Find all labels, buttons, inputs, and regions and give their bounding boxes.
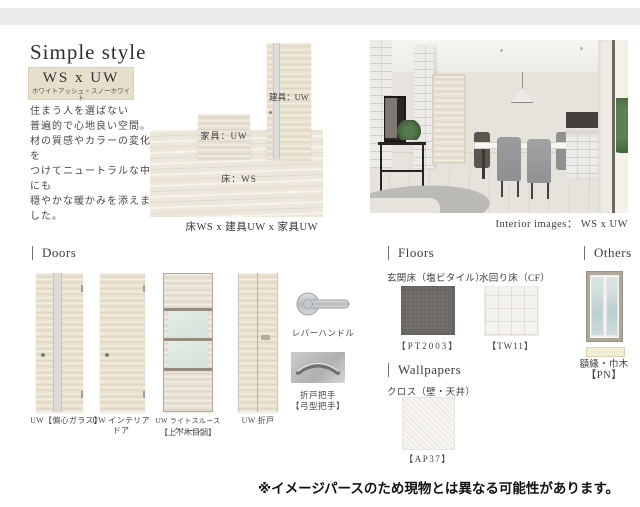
interior-pendant-rim — [511, 102, 533, 103]
description-line: 材の質感やカラーの変化を — [30, 134, 160, 164]
door-knob — [105, 353, 109, 357]
interior-photo — [370, 40, 628, 213]
style-description: 住まう人を選ばない 普遍的で心地良い空間。 材の質感やカラーの変化を つけてニュ… — [30, 104, 160, 224]
wallpaper-name: クロス（壁・天井） — [387, 384, 475, 398]
bifold-edge — [277, 273, 278, 412]
interior-right-wall — [598, 40, 612, 213]
interior-pendant-shade — [511, 88, 533, 103]
interior-table-top — [474, 142, 578, 149]
door-label-line2: 【上下木目調】 — [152, 427, 224, 438]
interior-caption: Interior images： WS x UW — [428, 216, 628, 231]
interior-console-top — [378, 142, 426, 145]
lever-handle-image — [293, 286, 353, 322]
top-gray-bar — [0, 8, 640, 25]
furniture-material-label: 家具：UW — [198, 129, 250, 142]
wallpapers-section-header: Wallpapers — [388, 363, 461, 377]
door-label: UW 折戸 — [232, 416, 284, 426]
page-title: Simple style — [30, 40, 146, 65]
bifold-handle-image — [291, 352, 345, 383]
floor-material-label: 床：WS — [199, 172, 279, 185]
doors-section-header: Doors — [32, 246, 76, 260]
floors-section-header: Floors — [388, 246, 434, 260]
interior-table-legs — [482, 149, 485, 179]
floor-swatch-tw11 — [484, 286, 539, 336]
furniture-material-swatch: 家具：UW — [198, 114, 250, 158]
others-code: 【PN】 — [568, 367, 640, 382]
bifold-center-split — [257, 273, 258, 412]
interior-balcony-plant — [616, 98, 628, 162]
interior-sofa-corner — [370, 198, 440, 213]
door-material-label: 建具：UW — [267, 91, 311, 103]
door-interior — [100, 273, 145, 412]
interior-pendant-wire — [522, 72, 523, 89]
style-code-subtitle: ホワイトアッシュ × スノーホワイト — [29, 88, 133, 102]
floor-item-code: 【TW11】 — [478, 339, 543, 352]
door-glass-strip — [53, 273, 62, 412]
description-line: 穏やかな暖かみを添えました。 — [30, 194, 160, 224]
interior-chair-legs — [501, 181, 503, 197]
window-frame-image — [586, 271, 623, 342]
door-hinge — [81, 391, 83, 398]
interior-ceiling — [370, 40, 628, 72]
floor-swatch-pt2003 — [401, 286, 455, 335]
bifold-edge — [238, 273, 239, 412]
description-line: 住まう人を選ばない — [30, 104, 160, 119]
disclaimer-note: ※イメージパースのため現物とは異なる可能性があります。 — [258, 477, 638, 497]
door-knob — [41, 353, 45, 357]
door-hinge — [143, 285, 145, 292]
door-bifold — [238, 273, 278, 412]
style-code-box: WS x UW ホワイトアッシュ × スノーホワイト — [28, 67, 134, 100]
interior-console-shelf — [382, 170, 422, 172]
interior-brick-pillar — [414, 46, 434, 168]
window-sash — [590, 275, 619, 338]
floor-item-code: 【PT2003】 — [391, 339, 465, 352]
door-hinge — [81, 285, 83, 292]
catalog-page: Simple style WS x UW ホワイトアッシュ × スノーホワイト … — [0, 0, 640, 507]
interior-chair-front-left — [497, 137, 521, 181]
door-label: UW インテリアドア — [90, 416, 152, 436]
description-line: 普遍的で心地良い空間。 — [30, 119, 160, 134]
wallpaper-code: 【AP37】 — [396, 452, 460, 465]
door-glass-pane — [168, 341, 208, 368]
interior-chair-front-right — [527, 139, 551, 183]
door-material-swatch: 建具：UW — [267, 43, 311, 159]
floor-item-name: 玄関床（塩ビタイル） — [387, 270, 485, 284]
door-offset-glass — [36, 273, 83, 412]
others-section-header: Others — [584, 246, 632, 260]
lever-handle-label: レバーハンドル — [288, 327, 358, 339]
door-glass-pane — [168, 311, 208, 338]
door-knob-dot — [269, 111, 272, 114]
window-glass-pane — [606, 277, 619, 336]
window-glass-pane — [591, 277, 604, 336]
bifold-handle-label-line2: 【弓型把手】 — [283, 400, 353, 412]
description-line: つけてニュートラルな中にも — [30, 164, 160, 194]
door-light-through-screen — [163, 273, 213, 412]
interior-console-legs — [380, 145, 382, 193]
floor-item-name: 水回り床（CF） — [479, 270, 550, 284]
interior-door — [432, 74, 466, 164]
wallpaper-swatch-ap37 — [402, 397, 455, 450]
material-diagram-caption: 床WS x 建具UW x 家具UW — [150, 219, 318, 234]
interior-plant-left — [396, 120, 422, 140]
door-hinge — [143, 391, 145, 398]
bifold-handle-recess — [261, 335, 270, 340]
style-code: WS x UW — [29, 68, 133, 88]
door-rail — [164, 368, 212, 371]
